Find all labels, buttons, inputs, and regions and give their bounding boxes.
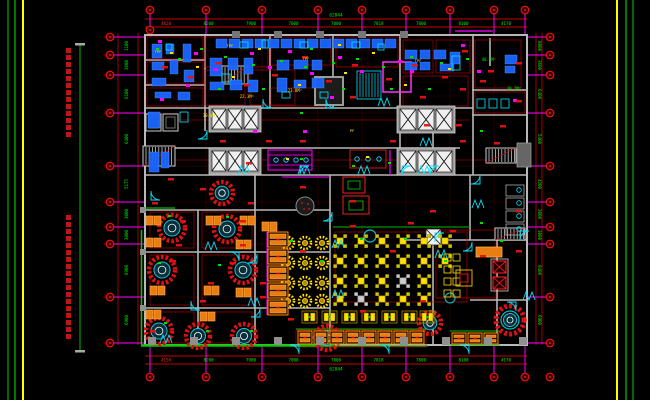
booth-seat (298, 331, 312, 344)
grid-axis-bubble (546, 109, 554, 117)
svg-text:5175: 5175 (124, 178, 129, 189)
svg-text:1100: 1100 (124, 40, 129, 51)
svg-text:7818: 7818 (373, 21, 384, 26)
grid-axis-bubble (106, 240, 114, 248)
svg-text:8000: 8000 (537, 41, 542, 52)
pair-table (362, 311, 377, 323)
door-zigzag-icon (435, 250, 447, 258)
booth-seat (268, 232, 288, 247)
booth-seat (268, 300, 288, 315)
svg-text:3000: 3000 (537, 209, 542, 220)
grid-axis-bubble (546, 198, 554, 206)
square-table (355, 235, 368, 248)
armchair-pair (146, 216, 161, 225)
grid-axis-bubble (106, 339, 114, 347)
svg-text:TPF: TPF (227, 43, 235, 48)
door-zigzag-icon (358, 166, 370, 174)
grid-axis-bubble (546, 51, 554, 59)
grid-axis-bubble (314, 373, 322, 381)
grid-axis-bubble (314, 6, 322, 14)
grid-axis-bubble (402, 6, 410, 14)
grid-axis-bubble (490, 373, 498, 381)
svg-text:48.5M²: 48.5M² (482, 57, 496, 62)
svg-text:7900: 7900 (246, 358, 257, 363)
grid-axis-bubble (546, 71, 554, 79)
grid-axis-bubble (546, 293, 554, 301)
svg-text:9400: 9400 (537, 265, 542, 276)
svg-text:5400: 5400 (537, 134, 542, 145)
door-swing-icon (471, 175, 480, 184)
door-zigzag-icon (523, 292, 535, 300)
svg-text:7818: 7818 (373, 358, 384, 363)
square-table (376, 275, 389, 288)
svg-text:62844: 62844 (329, 13, 343, 19)
armchair-pair (200, 312, 215, 321)
square-table (397, 275, 410, 288)
svg-text:62844: 62844 (329, 367, 343, 373)
square-table (418, 275, 431, 288)
armchair-pair (150, 286, 165, 295)
svg-text:7000: 7000 (288, 358, 299, 363)
square-table (418, 255, 431, 268)
booth-seat (378, 331, 392, 344)
plan-content: 48.5M²30.2M²22.3M²10.0M²23.8M²TPFTPFTPFT… (140, 31, 535, 354)
armchair-pair (204, 286, 219, 295)
elevator-bank (209, 106, 261, 132)
svg-text:TPF: TPF (155, 49, 163, 54)
svg-text:4170: 4170 (501, 358, 512, 363)
square-table (376, 293, 389, 306)
svg-text:TPF: TPF (415, 58, 423, 63)
grid-axis-bubble (546, 373, 554, 381)
svg-text:4820: 4820 (161, 21, 172, 26)
grid-axis-bubble (546, 33, 554, 41)
vertical-note-text (66, 48, 71, 339)
booth-seat (468, 333, 482, 344)
svg-text:7900: 7900 (246, 21, 257, 26)
svg-text:6400: 6400 (124, 133, 129, 144)
svg-text:22.3M²: 22.3M² (240, 94, 254, 99)
grid-axis-bubble (106, 198, 114, 206)
grid-axis-bubble (258, 373, 266, 381)
square-table (355, 275, 368, 288)
grid-axis-bubble (106, 293, 114, 301)
pair-table (302, 311, 317, 323)
square-table (355, 255, 368, 268)
grid-axis-bubble (546, 240, 554, 248)
left-note-frame (75, 43, 85, 353)
square-table (418, 293, 431, 306)
grid-axis-bubble (546, 339, 554, 347)
booth-seat (330, 331, 344, 344)
armchair-pair (206, 216, 221, 225)
grid-axis-bubble (106, 33, 114, 41)
grid-axis-bubble (546, 162, 554, 170)
svg-text:4170: 4170 (501, 21, 512, 26)
svg-text:6900: 6900 (124, 314, 129, 325)
door-swing-icon (460, 345, 469, 354)
door-swing-icon (463, 242, 472, 251)
svg-text:TPF: TPF (303, 56, 311, 61)
svg-text:23.8M²: 23.8M² (288, 88, 302, 93)
grid-axis-bubble (446, 373, 454, 381)
grid-axis-bubble (202, 373, 210, 381)
svg-text:8200: 8200 (203, 358, 214, 363)
elevator-bank (209, 148, 261, 174)
square-table (334, 255, 347, 268)
square-table (397, 255, 410, 268)
svg-text:3600: 3600 (124, 59, 129, 70)
square-table (376, 235, 389, 248)
grid-axis-bubble (521, 6, 529, 14)
grid-axis-bubble (546, 223, 554, 231)
grid-axis-bubble (146, 6, 154, 14)
svg-text:8100: 8100 (458, 21, 469, 26)
booth-seat (346, 331, 360, 344)
square-table (376, 255, 389, 268)
armchair-pair (236, 288, 251, 297)
sheet-border-left (8, 0, 23, 400)
floor-plan-drawing: 4820820079007000700078187800810041706284… (0, 0, 650, 400)
svg-text:6900: 6900 (537, 315, 542, 326)
flower-table (299, 257, 311, 269)
svg-text:4150: 4150 (161, 358, 172, 363)
svg-text:8100: 8100 (458, 358, 469, 363)
svg-text:3000: 3000 (124, 208, 129, 219)
grid-axis-bubble (106, 223, 114, 231)
pair-table (382, 311, 397, 323)
cad-canvas[interactable]: 4820820079007000700078187800810041706284… (0, 0, 650, 400)
pair-table (402, 311, 417, 323)
door-zigzag-icon (205, 242, 217, 250)
round-table (211, 182, 233, 204)
grid-axis-bubble (521, 373, 529, 381)
square-table (397, 293, 410, 306)
square-table (334, 275, 347, 288)
svg-text:3000: 3000 (124, 229, 129, 240)
elevator-bank (397, 106, 455, 133)
flower-table (299, 237, 311, 249)
square-table (397, 235, 410, 248)
door-swing-icon (151, 191, 160, 200)
svg-text:3000: 3000 (537, 230, 542, 241)
svg-text:10.0M²: 10.0M² (203, 113, 217, 118)
grid-axis-bubble (490, 6, 498, 14)
svg-text:7000: 7000 (331, 21, 342, 26)
grid-axis-bubble (106, 71, 114, 79)
sheet-border-right (617, 0, 633, 400)
grid-axis-bubble (358, 6, 366, 14)
booth-seat (410, 331, 424, 344)
door-swing-icon (198, 130, 207, 139)
pair-table (342, 311, 357, 323)
grid-axis-bubble (106, 51, 114, 59)
armchair-pair (262, 222, 277, 231)
svg-text:7800: 7800 (416, 21, 427, 26)
round-table-large (496, 306, 524, 334)
grid-axis-bubble (358, 373, 366, 381)
armchair-pair (146, 238, 161, 247)
svg-text:4200: 4200 (537, 179, 542, 190)
square-table (355, 293, 368, 306)
booth-seat (452, 333, 466, 344)
svg-text:3600: 3600 (537, 60, 542, 71)
svg-text:6400: 6400 (537, 89, 542, 100)
grid-axis-bubble (146, 26, 154, 34)
svg-text:7800: 7800 (416, 358, 427, 363)
svg-text:7000: 7000 (331, 358, 342, 363)
svg-text:7000: 7000 (288, 21, 299, 26)
square-table (334, 293, 347, 306)
svg-text:6100: 6100 (124, 88, 129, 99)
booth-seat (268, 283, 288, 298)
booth-seat (268, 249, 288, 264)
grid-axis-bubble (402, 373, 410, 381)
booth-seat (268, 266, 288, 281)
grid-axis-bubble (202, 6, 210, 14)
door-zigzag-icon (472, 200, 484, 208)
svg-text:PF: PF (350, 128, 355, 133)
door-zigzag-icon (420, 138, 432, 146)
svg-text:6900: 6900 (124, 264, 129, 275)
round-table (159, 215, 185, 241)
elevator-bank (397, 148, 455, 175)
grid-axis-bubble (446, 6, 454, 14)
grid-axis-bubble (106, 109, 114, 117)
svg-text:8200: 8200 (203, 21, 214, 26)
flower-table (299, 277, 311, 289)
grid-axis-bubble (146, 373, 154, 381)
grid-axis-bubble (258, 6, 266, 14)
svg-text:30.2M²: 30.2M² (507, 86, 521, 91)
grid-axis-bubble (106, 162, 114, 170)
